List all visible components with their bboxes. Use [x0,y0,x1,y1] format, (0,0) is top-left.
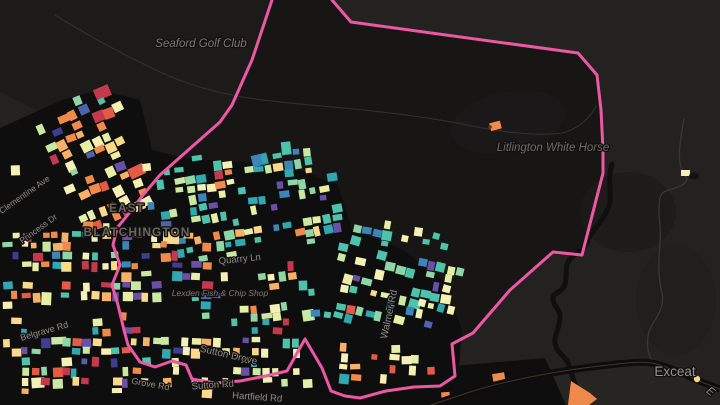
parcel [3,302,13,309]
parcel [283,339,290,349]
label-blatchington: BLATCHINGTON [84,225,191,239]
parcel [142,163,151,171]
parcel [177,249,185,258]
parcel [225,241,232,247]
parcel [221,272,228,281]
parcel [122,379,128,388]
parcel [339,364,348,370]
parcel [411,355,419,364]
label-seaford-golf-club: Seaford Golf Club [155,38,247,50]
parcel [362,226,372,234]
parcel [11,165,20,175]
parcel [349,285,358,293]
parcel [102,292,111,301]
parcel [142,253,150,259]
parcel [63,242,72,251]
parcel [123,292,133,301]
parcel [82,261,89,270]
parcel [391,345,400,353]
parcel [23,282,33,289]
label-litlington-white-horse: Litlington White Horse [497,142,610,154]
parcel [218,190,226,198]
parcel [292,149,299,155]
parcel [22,261,32,267]
parcel [281,379,288,387]
parcel [389,365,395,373]
parcel [270,304,281,314]
parcel [191,273,200,281]
parcel [161,253,172,262]
parcel [43,233,50,238]
parcel [92,327,98,335]
parcel [251,314,258,322]
parcel [41,377,50,385]
parcel [196,174,207,184]
map-svg: Clementine AvePrincess DrBelgrave RdGrov… [0,0,720,405]
parcel [141,271,152,277]
parcel [93,318,103,326]
parcel [22,378,28,386]
parcel [269,283,279,290]
parcel [81,378,89,385]
parcel [273,163,284,172]
parcel [186,247,193,254]
parcel [244,166,254,173]
parcel [174,167,184,173]
parcel [303,379,313,388]
parcel [287,179,298,186]
parcel [279,190,290,198]
parcel [172,271,183,281]
parcel [187,186,196,194]
parcel [101,282,112,288]
parcel [162,349,171,359]
parcel [173,347,183,353]
parcel [111,347,119,354]
parcel [172,262,182,268]
parcel [121,272,131,282]
parcel [31,243,37,249]
parcel [307,238,316,244]
parcel [254,237,261,243]
parcel [197,184,206,191]
bush-patch [689,173,699,180]
parcel [122,282,130,288]
parcel [42,242,50,252]
parcel [254,166,264,172]
parcel [91,291,99,300]
parcel [93,338,102,346]
parcel [169,208,178,217]
parcel [305,168,312,174]
parcel [156,179,164,190]
parcel [192,338,202,345]
parcel [248,197,258,205]
parcel [3,281,13,289]
parcel [183,347,190,356]
parcel [389,354,400,361]
parcel [11,291,17,299]
parcel [201,301,211,309]
parcel [51,232,58,239]
parcel [62,281,71,289]
parcel [13,252,19,259]
parcel [33,253,43,261]
parcel [161,241,167,248]
parcel [427,367,435,375]
parcel [143,337,150,346]
parcel [181,337,188,346]
parcel [3,339,10,347]
parcel [61,357,72,366]
label-east: EAST [109,201,145,215]
label-exceat: Exceat [654,364,696,379]
parcel [62,367,70,375]
parcel [299,280,308,290]
parcel [263,377,273,383]
parcel [113,377,123,385]
parcel [81,291,88,300]
parcel [61,292,69,297]
parcel [428,303,435,309]
parcel [305,229,314,237]
parcel [250,305,257,314]
parcel [272,312,282,321]
parcel [216,241,224,252]
parcel [401,235,409,243]
parcel [53,367,64,377]
parcel [62,338,71,347]
parcel [292,339,299,348]
parcel [102,263,108,269]
parcel [414,227,423,237]
parcel [91,262,97,272]
parcel [258,273,266,281]
parcel [32,262,38,271]
parcel [235,229,245,237]
parcel [22,293,31,299]
parcel [353,224,362,233]
parcel [327,172,338,182]
parcel [101,348,111,354]
parcel [240,306,249,313]
parcel [32,368,40,375]
parcel [152,292,162,302]
parcel [267,274,274,281]
parcel [380,374,387,384]
parcel [141,293,148,302]
isolated-parcel [681,170,690,176]
parcel [238,187,246,195]
parcel [203,262,212,270]
parcel [277,181,284,189]
parcel [190,207,197,216]
parcel [21,388,28,394]
parcel [281,302,288,311]
parcel [308,288,315,295]
parcel [340,284,349,293]
parcel [41,292,51,305]
parcel [83,347,90,354]
parcel [122,261,131,267]
parcel [213,160,222,171]
parcel [252,327,258,334]
parcel [62,252,72,260]
parcel [111,358,118,367]
parcel [304,156,312,165]
parcel [311,309,321,316]
parcel [122,241,129,249]
parcel [111,261,117,270]
parcel-cluster [11,165,20,175]
parcel [351,374,362,381]
parcel [288,272,297,280]
parcel [21,347,27,354]
parcel [409,365,417,375]
parcel [131,281,141,290]
parcel [191,261,201,268]
parcel [333,222,342,233]
parcel [339,374,350,385]
parcel [233,367,241,375]
parcel [132,367,141,374]
parcel [287,261,293,271]
parcel [131,327,141,334]
parcel [261,349,268,358]
parcel [401,356,411,364]
parcel [253,226,262,234]
parcel [340,343,347,352]
parcel [52,251,60,259]
parcel [33,293,41,303]
parcel [202,312,210,319]
parcel [161,337,169,345]
parcel [253,368,261,375]
parcel [341,353,348,363]
parcel [122,367,128,376]
parcel [303,148,311,157]
parcel [171,251,178,261]
parcel [320,195,327,201]
parcel [293,368,300,375]
parcel [72,377,79,386]
parcel [222,161,233,169]
parcel [242,338,249,344]
parcel [273,224,279,231]
parcel [281,141,292,155]
litlington-marker-tip [488,125,492,129]
parcel [381,230,393,241]
parcel [161,211,171,220]
parcel [81,358,87,364]
parcel [11,318,22,325]
parcel [72,338,82,346]
parcel [72,231,81,237]
parcel [252,348,259,355]
parcel [41,367,47,376]
parcel [258,196,266,205]
parcel [41,338,51,348]
parcel [231,318,237,326]
parcel [152,243,160,248]
parcel [147,202,154,210]
parcel [278,271,286,282]
parcel [202,243,211,252]
parcel [22,357,31,365]
parcel [12,349,22,357]
parcel [235,239,246,247]
parcel [22,368,29,376]
parcel [214,170,223,179]
parcel [273,327,283,334]
parcel [440,294,452,305]
parcel [92,252,98,260]
parcel [371,354,377,360]
parcel [61,262,71,272]
parcel [324,311,332,318]
parcel [271,204,278,211]
parcel [102,329,111,337]
parcel [262,319,269,325]
parcel [303,217,313,226]
parcel [52,262,62,270]
parcel [312,216,321,224]
parcel [283,319,289,326]
parcel [82,253,89,260]
parcel [31,349,40,355]
parcel [152,281,162,289]
parcel [422,239,430,245]
parcel [346,305,356,315]
parcel [198,193,207,202]
map-canvas[interactable]: Clementine AvePrincess DrBelgrave RdGrov… [0,0,720,405]
parcel [444,274,452,283]
parcel [83,283,90,292]
parcel [72,348,81,355]
parcel [2,242,13,248]
parcel [182,273,190,280]
parcel [241,367,249,375]
parcel [41,261,50,267]
parcel [223,229,235,240]
parcel [175,187,183,193]
parcel [173,367,179,375]
parcel [350,364,360,370]
parcel [112,388,122,393]
label-chip-shop: Lexden Fish & Chip Shop [172,288,269,298]
parcel [131,338,137,345]
parcel [92,357,100,367]
parcel [405,306,414,316]
parcel [61,232,68,242]
parcel [284,169,294,177]
parcel [131,263,137,269]
parcel [52,379,63,389]
parcel [252,337,261,342]
